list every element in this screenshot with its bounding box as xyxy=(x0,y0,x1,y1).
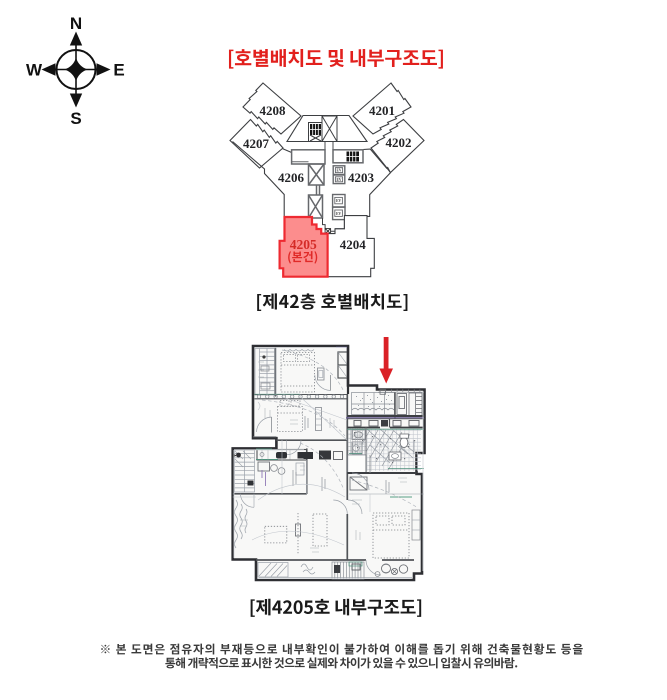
svg-text:4201: 4201 xyxy=(369,103,395,118)
svg-text:EV: EV xyxy=(337,169,342,173)
svg-text:W: W xyxy=(26,61,43,80)
svg-text:4205: 4205 xyxy=(290,237,317,252)
svg-text:4202: 4202 xyxy=(386,135,412,150)
svg-text:4208: 4208 xyxy=(260,103,287,118)
svg-text:EV: EV xyxy=(336,212,341,216)
svg-text:4203: 4203 xyxy=(348,170,375,185)
svg-text:E: E xyxy=(113,61,124,80)
svg-text:N: N xyxy=(70,14,82,33)
svg-text:4207: 4207 xyxy=(243,136,270,151)
svg-text:EV: EV xyxy=(336,199,341,203)
svg-text:EV: EV xyxy=(337,178,342,182)
svg-text:4206: 4206 xyxy=(278,170,305,185)
svg-text:4204: 4204 xyxy=(340,237,367,252)
svg-text:S: S xyxy=(70,109,81,128)
